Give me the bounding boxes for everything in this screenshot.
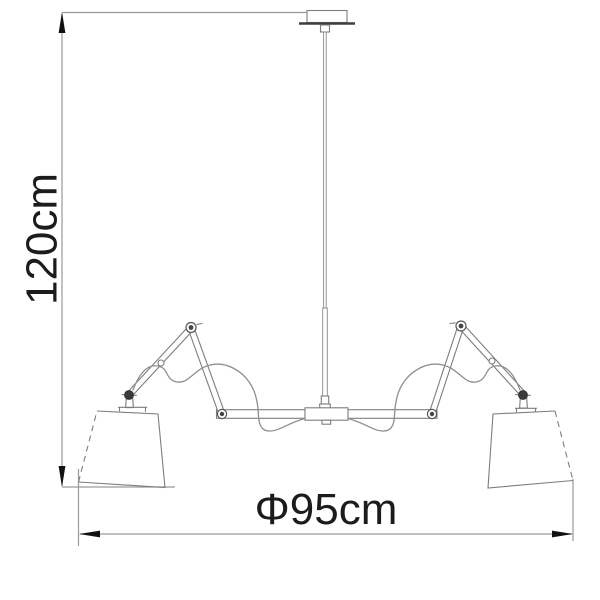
- diameter-dimension: Φ95cm: [79, 469, 574, 546]
- ceiling-mount: [299, 11, 355, 33]
- left-shade-pivot-joint: [125, 391, 134, 400]
- drawing-svg: 120cm Φ95cm: [0, 0, 600, 600]
- left-elbow-screw: [220, 412, 224, 416]
- hub-bottom-nub: [322, 420, 331, 424]
- right-top-pivot-bolt: [450, 323, 456, 324]
- ceiling-canopy: [307, 11, 347, 23]
- lampshade-left: [79, 407, 166, 487]
- lampshade-right: [488, 408, 573, 488]
- right-top-pivot-screw: [459, 324, 464, 329]
- canopy-cord-grip: [321, 25, 330, 32]
- center-hub-assembly: [217, 408, 438, 424]
- right-lower-link: [429, 325, 464, 415]
- left-shade-dashed-edge: [79, 411, 98, 482]
- right-elbow-screw: [430, 412, 434, 416]
- height-dimension-label: 120cm: [18, 173, 67, 305]
- right-shade-dashed-edge: [555, 411, 573, 481]
- up-arrowhead-icon: [59, 12, 66, 33]
- left-lower-link: [188, 327, 225, 415]
- left-shade-outline: [79, 411, 166, 488]
- right-arrowhead-icon: [552, 531, 573, 538]
- hub-bar-right: [348, 410, 437, 419]
- right-shade-outline: [488, 411, 573, 488]
- down-arrowhead-icon: [59, 466, 66, 487]
- suspension-rod: [320, 32, 331, 409]
- left-arrowhead-icon: [79, 531, 100, 538]
- right-mid-pivot: [489, 358, 495, 364]
- right-shade-pivot-joint: [519, 391, 528, 400]
- left-top-pivot-bolt: [197, 324, 203, 325]
- lamp-technical-drawing: 120cm Φ95cm: [0, 0, 600, 600]
- upper-rod: [324, 32, 327, 308]
- diameter-dimension-label: Φ95cm: [255, 485, 398, 534]
- hub-bar-left: [217, 410, 306, 419]
- left-mid-pivot: [158, 360, 164, 366]
- rod-coupler-upper: [321, 396, 328, 404]
- lower-rod: [323, 308, 328, 396]
- center-hub-body: [305, 408, 348, 420]
- left-top-pivot-screw: [189, 325, 194, 330]
